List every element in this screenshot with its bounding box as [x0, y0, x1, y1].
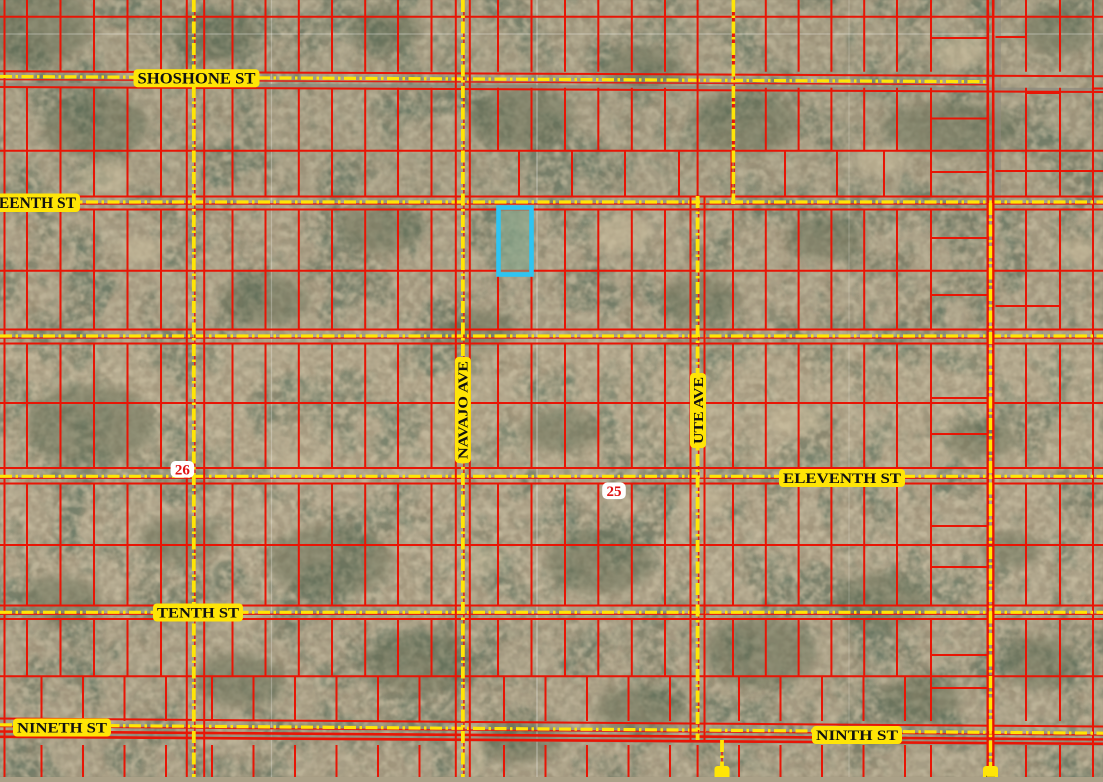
svg-text:ELEVENTH ST: ELEVENTH ST: [783, 471, 901, 487]
svg-text:UTE AVE: UTE AVE: [691, 377, 706, 444]
svg-text:26: 26: [175, 462, 191, 478]
svg-text:SHOSHONE ST: SHOSHONE ST: [138, 70, 257, 87]
svg-text:NINTH ST: NINTH ST: [816, 728, 898, 744]
svg-text:25: 25: [607, 484, 622, 500]
svg-text:TENTH ST: TENTH ST: [157, 606, 239, 622]
svg-text:NINETH ST: NINETH ST: [17, 721, 107, 737]
svg-text:NAVAJO AVE: NAVAJO AVE: [457, 361, 472, 459]
svg-text:EENTH ST: EENTH ST: [0, 195, 77, 212]
